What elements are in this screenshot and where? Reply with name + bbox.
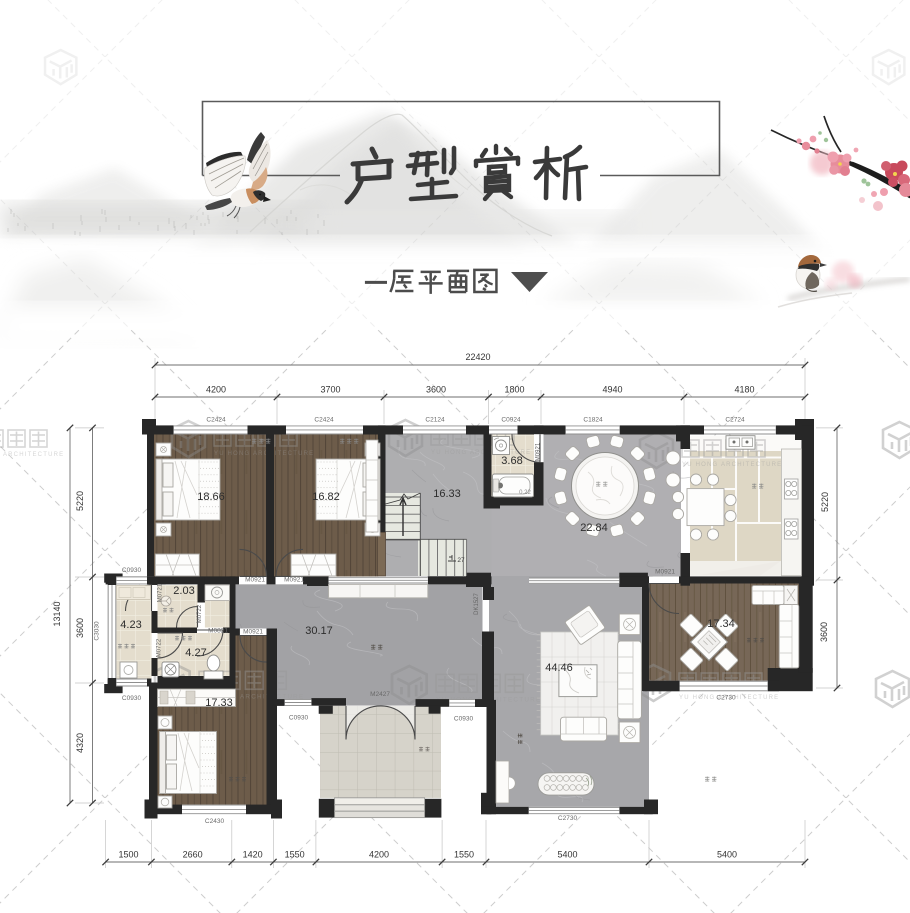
svg-text:5400: 5400 xyxy=(557,850,577,860)
svg-text:C2430: C2430 xyxy=(205,818,225,825)
svg-text:C2424: C2424 xyxy=(206,417,226,424)
svg-text:3.68: 3.68 xyxy=(501,455,522,467)
svg-text:4320: 4320 xyxy=(75,733,85,753)
svg-text:C0930: C0930 xyxy=(122,695,142,702)
svg-text:C3030: C3030 xyxy=(94,621,101,641)
svg-text:2660: 2660 xyxy=(183,850,203,860)
svg-text:1550: 1550 xyxy=(285,850,305,860)
svg-text:3600: 3600 xyxy=(426,385,446,395)
svg-text:1500: 1500 xyxy=(118,850,138,860)
svg-text:C0924: C0924 xyxy=(501,416,521,423)
svg-text:13140: 13140 xyxy=(52,601,62,626)
svg-text:16.82: 16.82 xyxy=(312,491,340,503)
svg-text:4180: 4180 xyxy=(734,385,754,395)
svg-text:M0721: M0721 xyxy=(158,583,164,602)
svg-text:M0921: M0921 xyxy=(536,442,542,461)
svg-text:18.66: 18.66 xyxy=(197,491,225,503)
svg-text:5400: 5400 xyxy=(717,850,737,860)
svg-text:16.33: 16.33 xyxy=(433,488,461,500)
svg-text:3600: 3600 xyxy=(75,618,85,638)
svg-text:22420: 22420 xyxy=(465,352,490,362)
svg-text:M0921: M0921 xyxy=(245,577,265,584)
svg-text:4.23: 4.23 xyxy=(120,619,141,631)
svg-text:22.84: 22.84 xyxy=(580,522,608,534)
svg-text:4940: 4940 xyxy=(602,385,622,395)
svg-text:4200: 4200 xyxy=(369,850,389,860)
svg-text:2.03: 2.03 xyxy=(173,585,194,597)
svg-text:17.33: 17.33 xyxy=(205,697,233,709)
svg-text:3700: 3700 xyxy=(320,385,340,395)
svg-text:M2427: M2427 xyxy=(370,691,390,698)
svg-text:C2724: C2724 xyxy=(725,417,745,424)
svg-text:3600: 3600 xyxy=(819,622,829,642)
svg-text:1800: 1800 xyxy=(504,385,524,395)
svg-text:30.17: 30.17 xyxy=(305,625,333,637)
svg-text:YU HONG ARCHITECTURE: YU HONG ARCHITECTURE xyxy=(682,462,782,468)
svg-text:M0921: M0921 xyxy=(243,629,263,636)
svg-text:M0722: M0722 xyxy=(197,604,203,623)
svg-text:C2424: C2424 xyxy=(314,417,334,424)
svg-text:C2124: C2124 xyxy=(425,417,445,424)
svg-text:DK1527: DK1527 xyxy=(474,592,480,614)
svg-text:17.34: 17.34 xyxy=(707,618,735,630)
svg-text:5220: 5220 xyxy=(820,492,830,512)
svg-text:C0930: C0930 xyxy=(289,715,309,722)
svg-text:YU HONG ARCHITECTURE: YU HONG ARCHITECTURE xyxy=(0,452,64,458)
svg-text:C0930: C0930 xyxy=(454,716,474,723)
svg-text:C2730: C2730 xyxy=(716,695,736,702)
svg-text:M0722: M0722 xyxy=(157,638,163,657)
svg-text:C1824: C1824 xyxy=(583,416,603,423)
svg-text:C0930: C0930 xyxy=(122,567,142,574)
svg-text:0.22: 0.22 xyxy=(519,490,531,496)
svg-text:YU HONG ARCHITECTURE: YU HONG ARCHITECTURE xyxy=(214,451,314,457)
svg-text:4.27: 4.27 xyxy=(185,647,206,659)
svg-text:44.46: 44.46 xyxy=(545,662,573,674)
svg-text:M0821: M0821 xyxy=(208,628,228,635)
svg-text:4200: 4200 xyxy=(206,385,226,395)
svg-text:1420: 1420 xyxy=(243,850,263,860)
svg-text:M0921: M0921 xyxy=(284,577,304,584)
svg-text:27: 27 xyxy=(457,557,465,564)
svg-text:5220: 5220 xyxy=(75,491,85,511)
svg-text:1550: 1550 xyxy=(454,850,474,860)
svg-text:C2730: C2730 xyxy=(558,815,578,822)
svg-text:M0921: M0921 xyxy=(655,569,675,576)
